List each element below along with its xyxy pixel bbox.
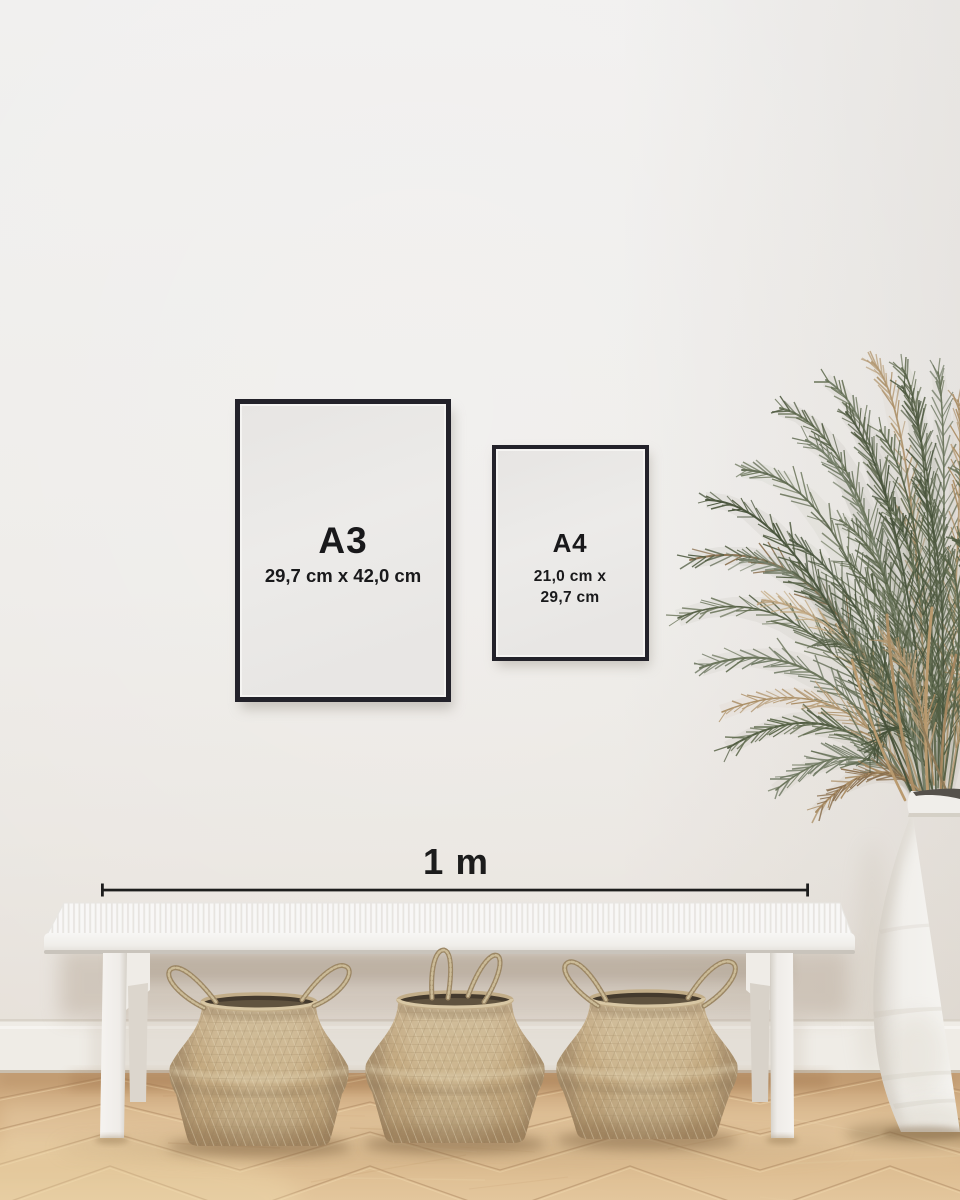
svg-text:21,0 cm x: 21,0 cm x [534, 568, 607, 585]
svg-text:A4: A4 [553, 528, 588, 558]
svg-text:29,7 cm x 42,0 cm: 29,7 cm x 42,0 cm [265, 565, 421, 586]
svg-text:A3: A3 [318, 520, 367, 561]
svg-text:1 m: 1 m [423, 841, 489, 882]
svg-text:29,7 cm: 29,7 cm [541, 589, 600, 606]
